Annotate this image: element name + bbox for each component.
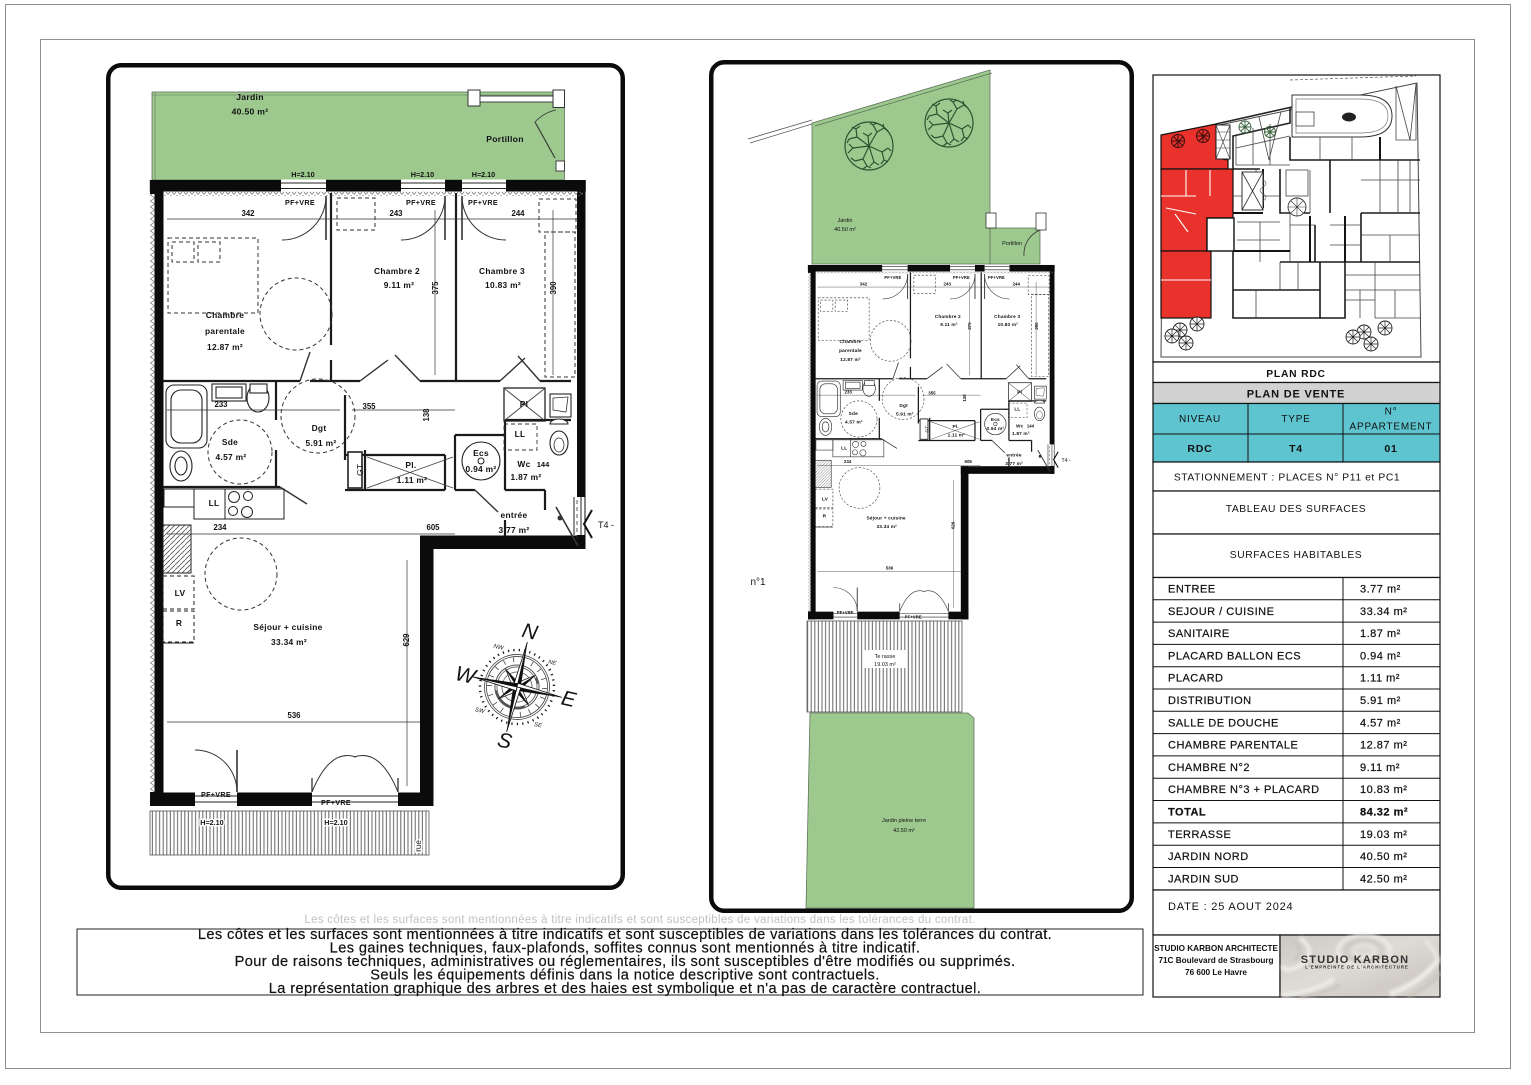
- svg-text:LV: LV: [175, 588, 186, 598]
- svg-text:H=2.10: H=2.10: [411, 170, 434, 179]
- svg-text:40.50 m²: 40.50 m²: [834, 227, 856, 233]
- svg-text:GT: GT: [355, 464, 365, 476]
- svg-text:LL: LL: [515, 429, 526, 439]
- svg-text:Ecs: Ecs: [473, 448, 489, 458]
- svg-text:DATE : 25 AOUT 2024: DATE : 25 AOUT 2024: [1168, 901, 1293, 913]
- svg-text:STATIONNEMENT : PLACES N° P11: STATIONNEMENT : PLACES N° P11 et PC1: [1174, 473, 1400, 484]
- svg-text:0.94 m²: 0.94 m²: [1360, 650, 1401, 662]
- svg-text:10.83 m²: 10.83 m²: [1360, 784, 1407, 796]
- svg-text:233: 233: [214, 400, 228, 409]
- svg-text:42.50 m²: 42.50 m²: [893, 828, 915, 834]
- svg-text:APPARTEMENT: APPARTEMENT: [1350, 422, 1433, 433]
- svg-text:TERRASSE: TERRASSE: [1168, 829, 1231, 841]
- svg-text:84.32 m²: 84.32 m²: [1360, 807, 1408, 819]
- svg-text:5.91 m²: 5.91 m²: [1360, 695, 1401, 707]
- svg-text:Séjour + cuisine: Séjour + cuisine: [253, 622, 322, 632]
- svg-text:9.11 m²: 9.11 m²: [384, 280, 415, 290]
- svg-text:390: 390: [549, 281, 558, 295]
- svg-text:0.94 m²: 0.94 m²: [466, 464, 497, 474]
- svg-text:Chambre 3: Chambre 3: [479, 266, 525, 276]
- svg-text:33.34 m²: 33.34 m²: [1360, 606, 1407, 618]
- svg-text:CHAMBRE N°3 + PLACARD: CHAMBRE N°3 + PLACARD: [1168, 784, 1320, 796]
- svg-text:40.50 m²: 40.50 m²: [232, 107, 269, 117]
- svg-text:144: 144: [537, 460, 550, 469]
- svg-text:4.57 m²: 4.57 m²: [216, 452, 247, 462]
- svg-text:Portillon: Portillon: [486, 134, 524, 144]
- svg-text:3.77 m²: 3.77 m²: [499, 525, 530, 535]
- svg-text:n°1: n°1: [750, 577, 766, 588]
- svg-text:LL: LL: [209, 498, 220, 508]
- svg-text:entrée: entrée: [501, 510, 528, 520]
- svg-text:Pl.: Pl.: [405, 460, 416, 470]
- svg-text:Chambre 2: Chambre 2: [374, 266, 420, 276]
- svg-text:234: 234: [213, 523, 227, 532]
- svg-text:Portillon: Portillon: [1002, 241, 1022, 247]
- svg-text:Les côtes et les surfaces sont: Les côtes et les surfaces sont mentionné…: [304, 914, 975, 926]
- svg-text:PLAN RDC: PLAN RDC: [1266, 369, 1326, 380]
- svg-text:Dgt: Dgt: [312, 423, 327, 433]
- svg-text:Jardin pleine terre: Jardin pleine terre: [882, 818, 926, 824]
- svg-text:1.87 m²: 1.87 m²: [511, 472, 542, 482]
- svg-text:PF+VRE: PF+VRE: [406, 198, 436, 207]
- svg-text:19.03 m²: 19.03 m²: [874, 662, 896, 668]
- svg-text:4.57 m²: 4.57 m²: [1360, 717, 1401, 729]
- svg-text:TABLEAU DES SURFACES: TABLEAU DES SURFACES: [1226, 504, 1367, 515]
- svg-text:RDC: RDC: [1187, 443, 1212, 455]
- svg-text:PLAN DE VENTE: PLAN DE VENTE: [1247, 389, 1345, 401]
- svg-text:Chambre: Chambre: [206, 310, 244, 320]
- svg-text:parentale: parentale: [205, 326, 245, 336]
- svg-text:SANITAIRE: SANITAIRE: [1168, 628, 1230, 640]
- svg-text:Sde: Sde: [222, 437, 238, 447]
- svg-text:H=2.10: H=2.10: [291, 170, 314, 179]
- svg-text:SALLE DE DOUCHE: SALLE DE DOUCHE: [1168, 717, 1279, 729]
- svg-text:PF+VRE: PF+VRE: [285, 198, 315, 207]
- svg-text:STUDIO KARBON ARCHITECTE: STUDIO KARBON ARCHITECTE: [1154, 944, 1278, 953]
- svg-text:19.03 m²: 19.03 m²: [1360, 829, 1407, 841]
- svg-text:42.50 m²: 42.50 m²: [1360, 874, 1407, 886]
- svg-text:La représentation graphique d: La représentation graphique des arbres e…: [269, 981, 981, 997]
- svg-text:ENTREE: ENTREE: [1168, 584, 1216, 596]
- svg-text:NIVEAU: NIVEAU: [1179, 414, 1221, 425]
- svg-text:Te rasse: Te rasse: [875, 654, 896, 660]
- svg-text:3.77 m²: 3.77 m²: [1360, 584, 1401, 596]
- svg-text:PLACARD BALLON ECS: PLACARD BALLON ECS: [1168, 650, 1301, 662]
- svg-text:DISTRIBUTION: DISTRIBUTION: [1168, 695, 1252, 707]
- svg-text:33.34 m²: 33.34 m²: [271, 637, 307, 647]
- svg-text:536: 536: [287, 711, 301, 720]
- svg-text:12.87 m²: 12.87 m²: [207, 342, 243, 352]
- svg-text:12.87 m²: 12.87 m²: [1360, 740, 1407, 752]
- svg-text:JARDIN NORD: JARDIN NORD: [1168, 851, 1249, 863]
- svg-text:PF+VRE: PF+VRE: [201, 790, 231, 799]
- svg-text:TYPE: TYPE: [1281, 414, 1310, 425]
- svg-text:01: 01: [1384, 443, 1397, 455]
- svg-text:1.87 m²: 1.87 m²: [1360, 628, 1401, 640]
- svg-text:Jardin: Jardin: [236, 92, 264, 102]
- svg-text:40.50 m²: 40.50 m²: [1360, 851, 1407, 863]
- svg-text:TOTAL: TOTAL: [1168, 807, 1206, 819]
- svg-text:T4: T4: [1289, 443, 1303, 455]
- svg-text:76 600 Le Havre: 76 600 Le Havre: [1185, 968, 1247, 977]
- svg-text:H=2.10: H=2.10: [324, 818, 347, 827]
- svg-text:CHAMBRE PARENTALE: CHAMBRE PARENTALE: [1168, 740, 1298, 752]
- svg-text:Wc: Wc: [517, 459, 530, 469]
- svg-text:10.83 m²: 10.83 m²: [485, 280, 521, 290]
- svg-text:9.11 m²: 9.11 m²: [1360, 762, 1400, 774]
- svg-text:L'EMPREINTE DE L'ARCHITECTURE: L'EMPREINTE DE L'ARCHITECTURE: [1305, 965, 1409, 970]
- svg-text:R: R: [176, 618, 182, 628]
- svg-text:1.11 m²: 1.11 m²: [397, 475, 428, 485]
- svg-text:1.11 m²: 1.11 m²: [1360, 673, 1400, 685]
- svg-text:rue: rue: [414, 840, 423, 852]
- svg-text:H=2.10: H=2.10: [200, 818, 223, 827]
- svg-text:5.91 m²: 5.91 m²: [306, 438, 337, 448]
- svg-text:Pl: Pl: [520, 399, 529, 409]
- svg-text:T4 -: T4 -: [598, 520, 614, 530]
- svg-text:PF+VRE: PF+VRE: [468, 198, 498, 207]
- svg-text:N°: N°: [1385, 407, 1398, 418]
- svg-text:243: 243: [389, 209, 403, 218]
- svg-text:71C Boulevard de Strasbourg: 71C Boulevard de Strasbourg: [1158, 956, 1273, 965]
- svg-text:244: 244: [511, 209, 525, 218]
- svg-text:Jardin: Jardin: [838, 218, 853, 224]
- svg-text:342: 342: [241, 209, 255, 218]
- svg-text:JARDIN SUD: JARDIN SUD: [1168, 874, 1239, 886]
- svg-text:375: 375: [431, 281, 440, 295]
- svg-text:PF+VRE: PF+VRE: [321, 798, 351, 807]
- svg-text:H=2.10: H=2.10: [472, 170, 495, 179]
- svg-text:PLACARD: PLACARD: [1168, 673, 1223, 685]
- svg-text:629: 629: [402, 633, 411, 647]
- svg-text:CHAMBRE N°2: CHAMBRE N°2: [1168, 762, 1250, 774]
- svg-text:SEJOUR / CUISINE: SEJOUR / CUISINE: [1168, 606, 1274, 618]
- svg-text:SURFACES HABITABLES: SURFACES HABITABLES: [1230, 550, 1363, 561]
- svg-text:605: 605: [426, 523, 440, 532]
